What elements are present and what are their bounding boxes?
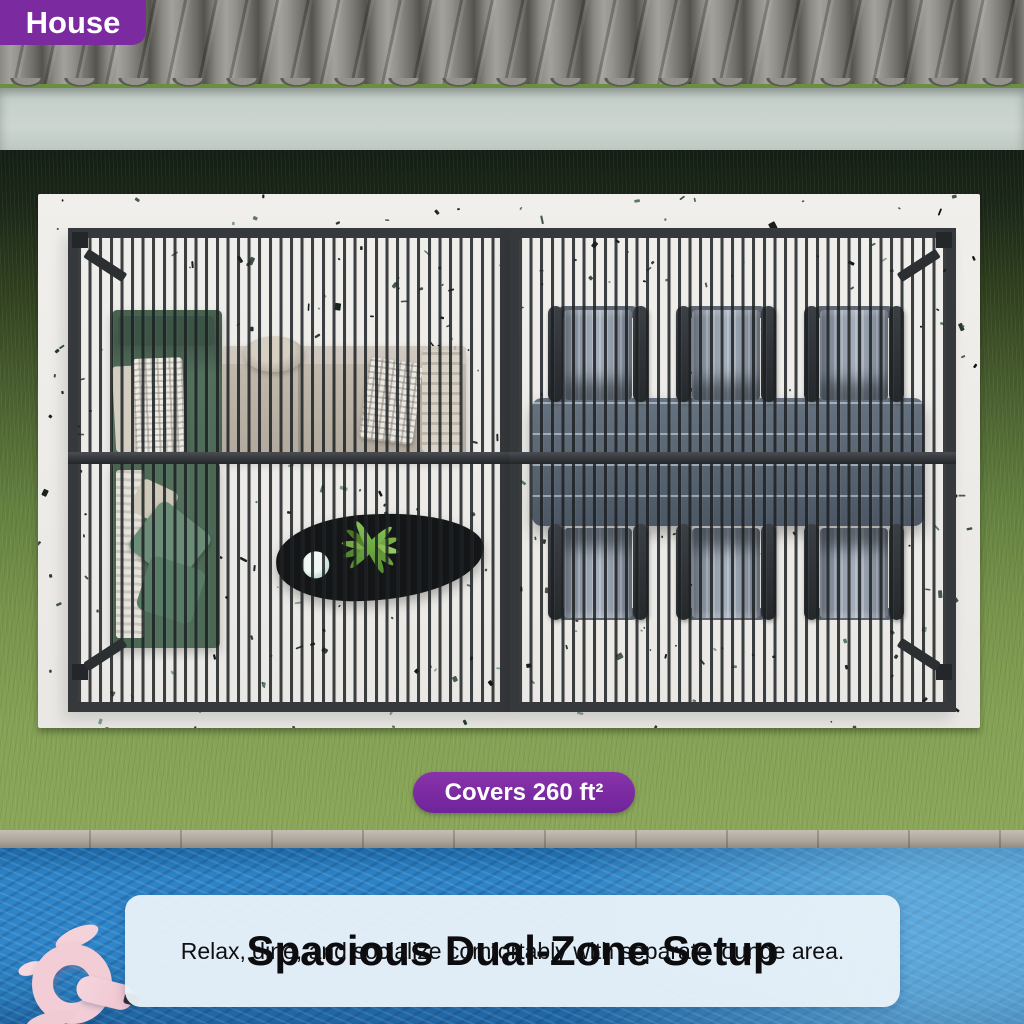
- house-badge-label: House: [26, 5, 121, 41]
- house-badge: House: [0, 0, 146, 45]
- roof-tile-edge: [0, 78, 1024, 95]
- pergola-louvers: [78, 238, 500, 702]
- house-roof-tiles: [0, 0, 1024, 84]
- coverage-badge: Covers 260 ft²: [413, 772, 635, 813]
- pool-coping-edge: [0, 830, 1024, 848]
- pergola-louvers: [519, 238, 946, 702]
- pergola-lounge-section: [68, 228, 510, 712]
- info-card-subtitle: Relax, dine, and socialize comfortably w…: [181, 940, 845, 963]
- pergola-post: [72, 232, 88, 248]
- pergola-crossbeam: [509, 452, 956, 464]
- coverage-badge-label: Covers 260 ft²: [445, 779, 604, 807]
- pergola-dining-section: [510, 228, 956, 712]
- product-scene: House Covers 260 ft² Spacious Dual-Zone …: [0, 0, 1024, 1024]
- flamingo-pool-float: [18, 928, 140, 1024]
- pergola-crossbeam: [68, 452, 510, 464]
- info-card: Spacious Dual-Zone Setup Relax, dine, an…: [125, 895, 900, 1007]
- pergola-post: [936, 232, 952, 248]
